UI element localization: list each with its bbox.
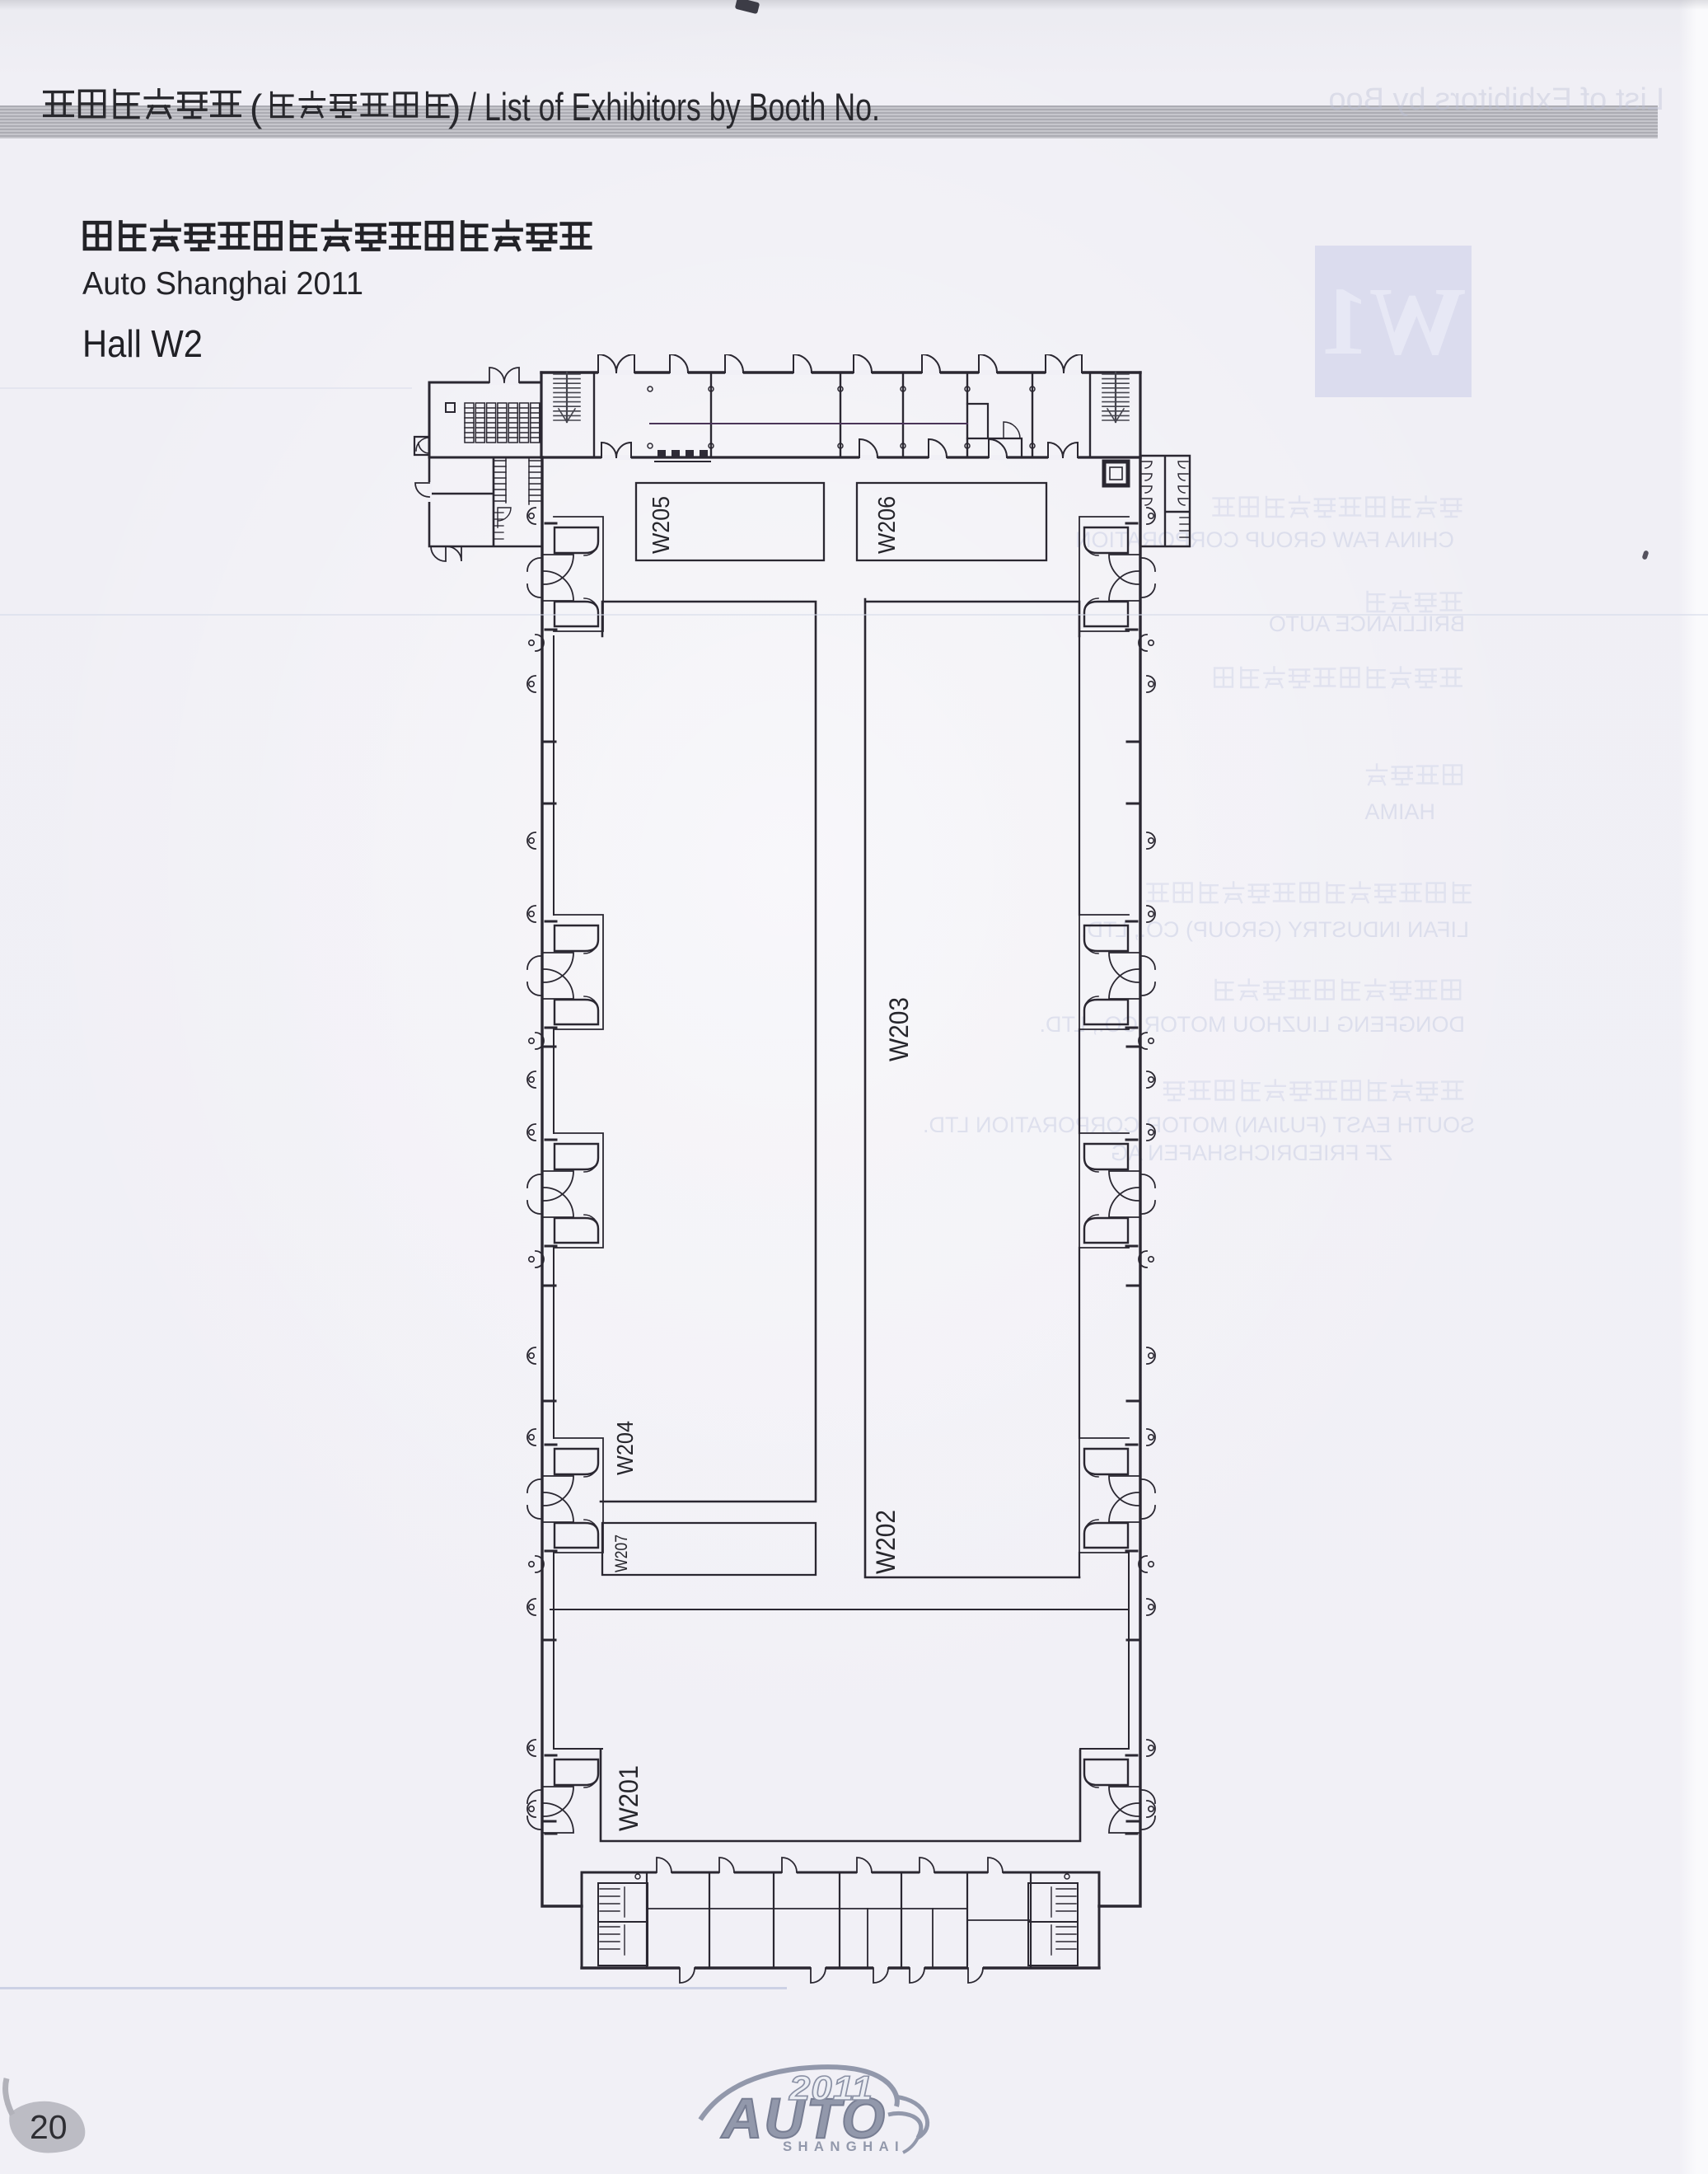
svg-text:2011: 2011 <box>788 2069 873 2107</box>
svg-text:20: 20 <box>30 2108 68 2146</box>
svg-text:HAIMA: HAIMA <box>1364 799 1435 824</box>
svg-text:(: ( <box>250 87 263 129</box>
svg-text:W202: W202 <box>871 1510 901 1574</box>
svg-text:/ List of Exhibitors by Booth: / List of Exhibitors by Booth No. <box>468 85 880 129</box>
svg-text:Auto Shanghai 2011: Auto Shanghai 2011 <box>82 266 363 302</box>
svg-text:W201: W201 <box>614 1765 643 1831</box>
svg-text:SHANGHAI: SHANGHAI <box>783 2139 905 2154</box>
svg-text:): ) <box>448 87 461 129</box>
svg-text:W205: W205 <box>648 496 675 554</box>
svg-text:Hall W2: Hall W2 <box>82 322 203 365</box>
svg-text:W204: W204 <box>612 1421 638 1475</box>
svg-text:W203: W203 <box>884 997 914 1061</box>
svg-text:W206: W206 <box>874 496 901 554</box>
svg-text:W207: W207 <box>612 1534 631 1572</box>
